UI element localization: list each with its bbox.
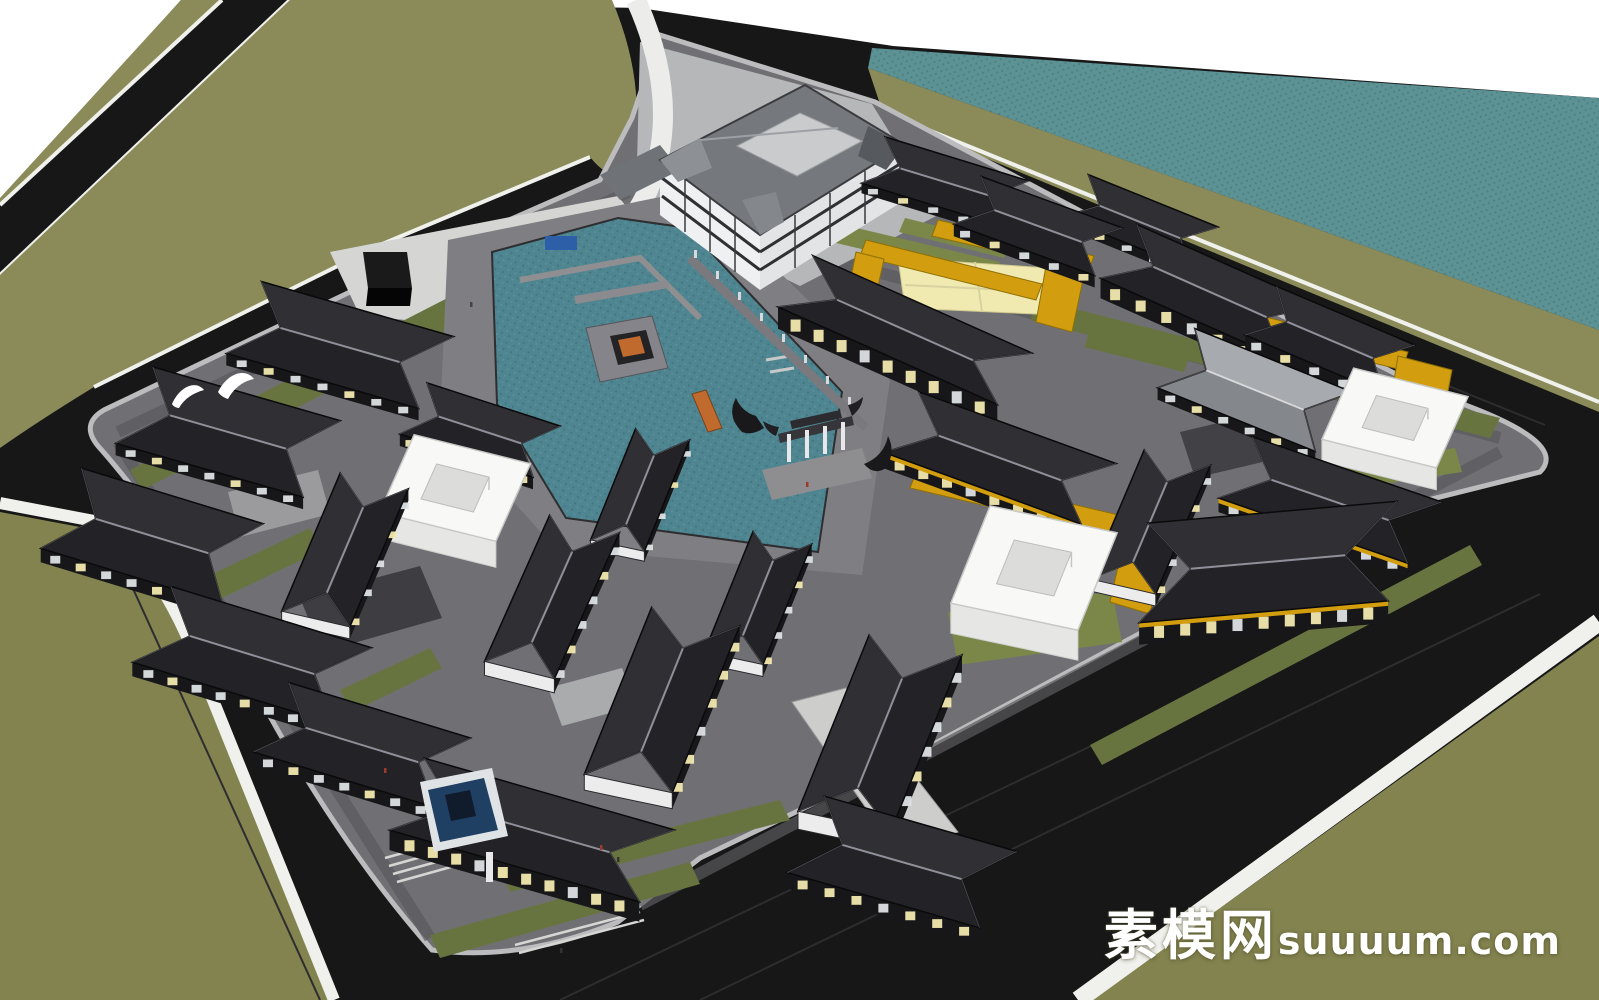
watermark-domain: suuuum.com [1278,919,1561,963]
watermark: 素模网suuuum.com [1104,891,1561,970]
cube-sculpture [363,252,412,306]
rendering-canvas: 素模网suuuum.com [0,0,1599,1000]
watermark-site-name: 素模网 [1104,891,1278,970]
pond-head-feature [545,236,577,250]
pylon-sculpture [486,852,493,882]
